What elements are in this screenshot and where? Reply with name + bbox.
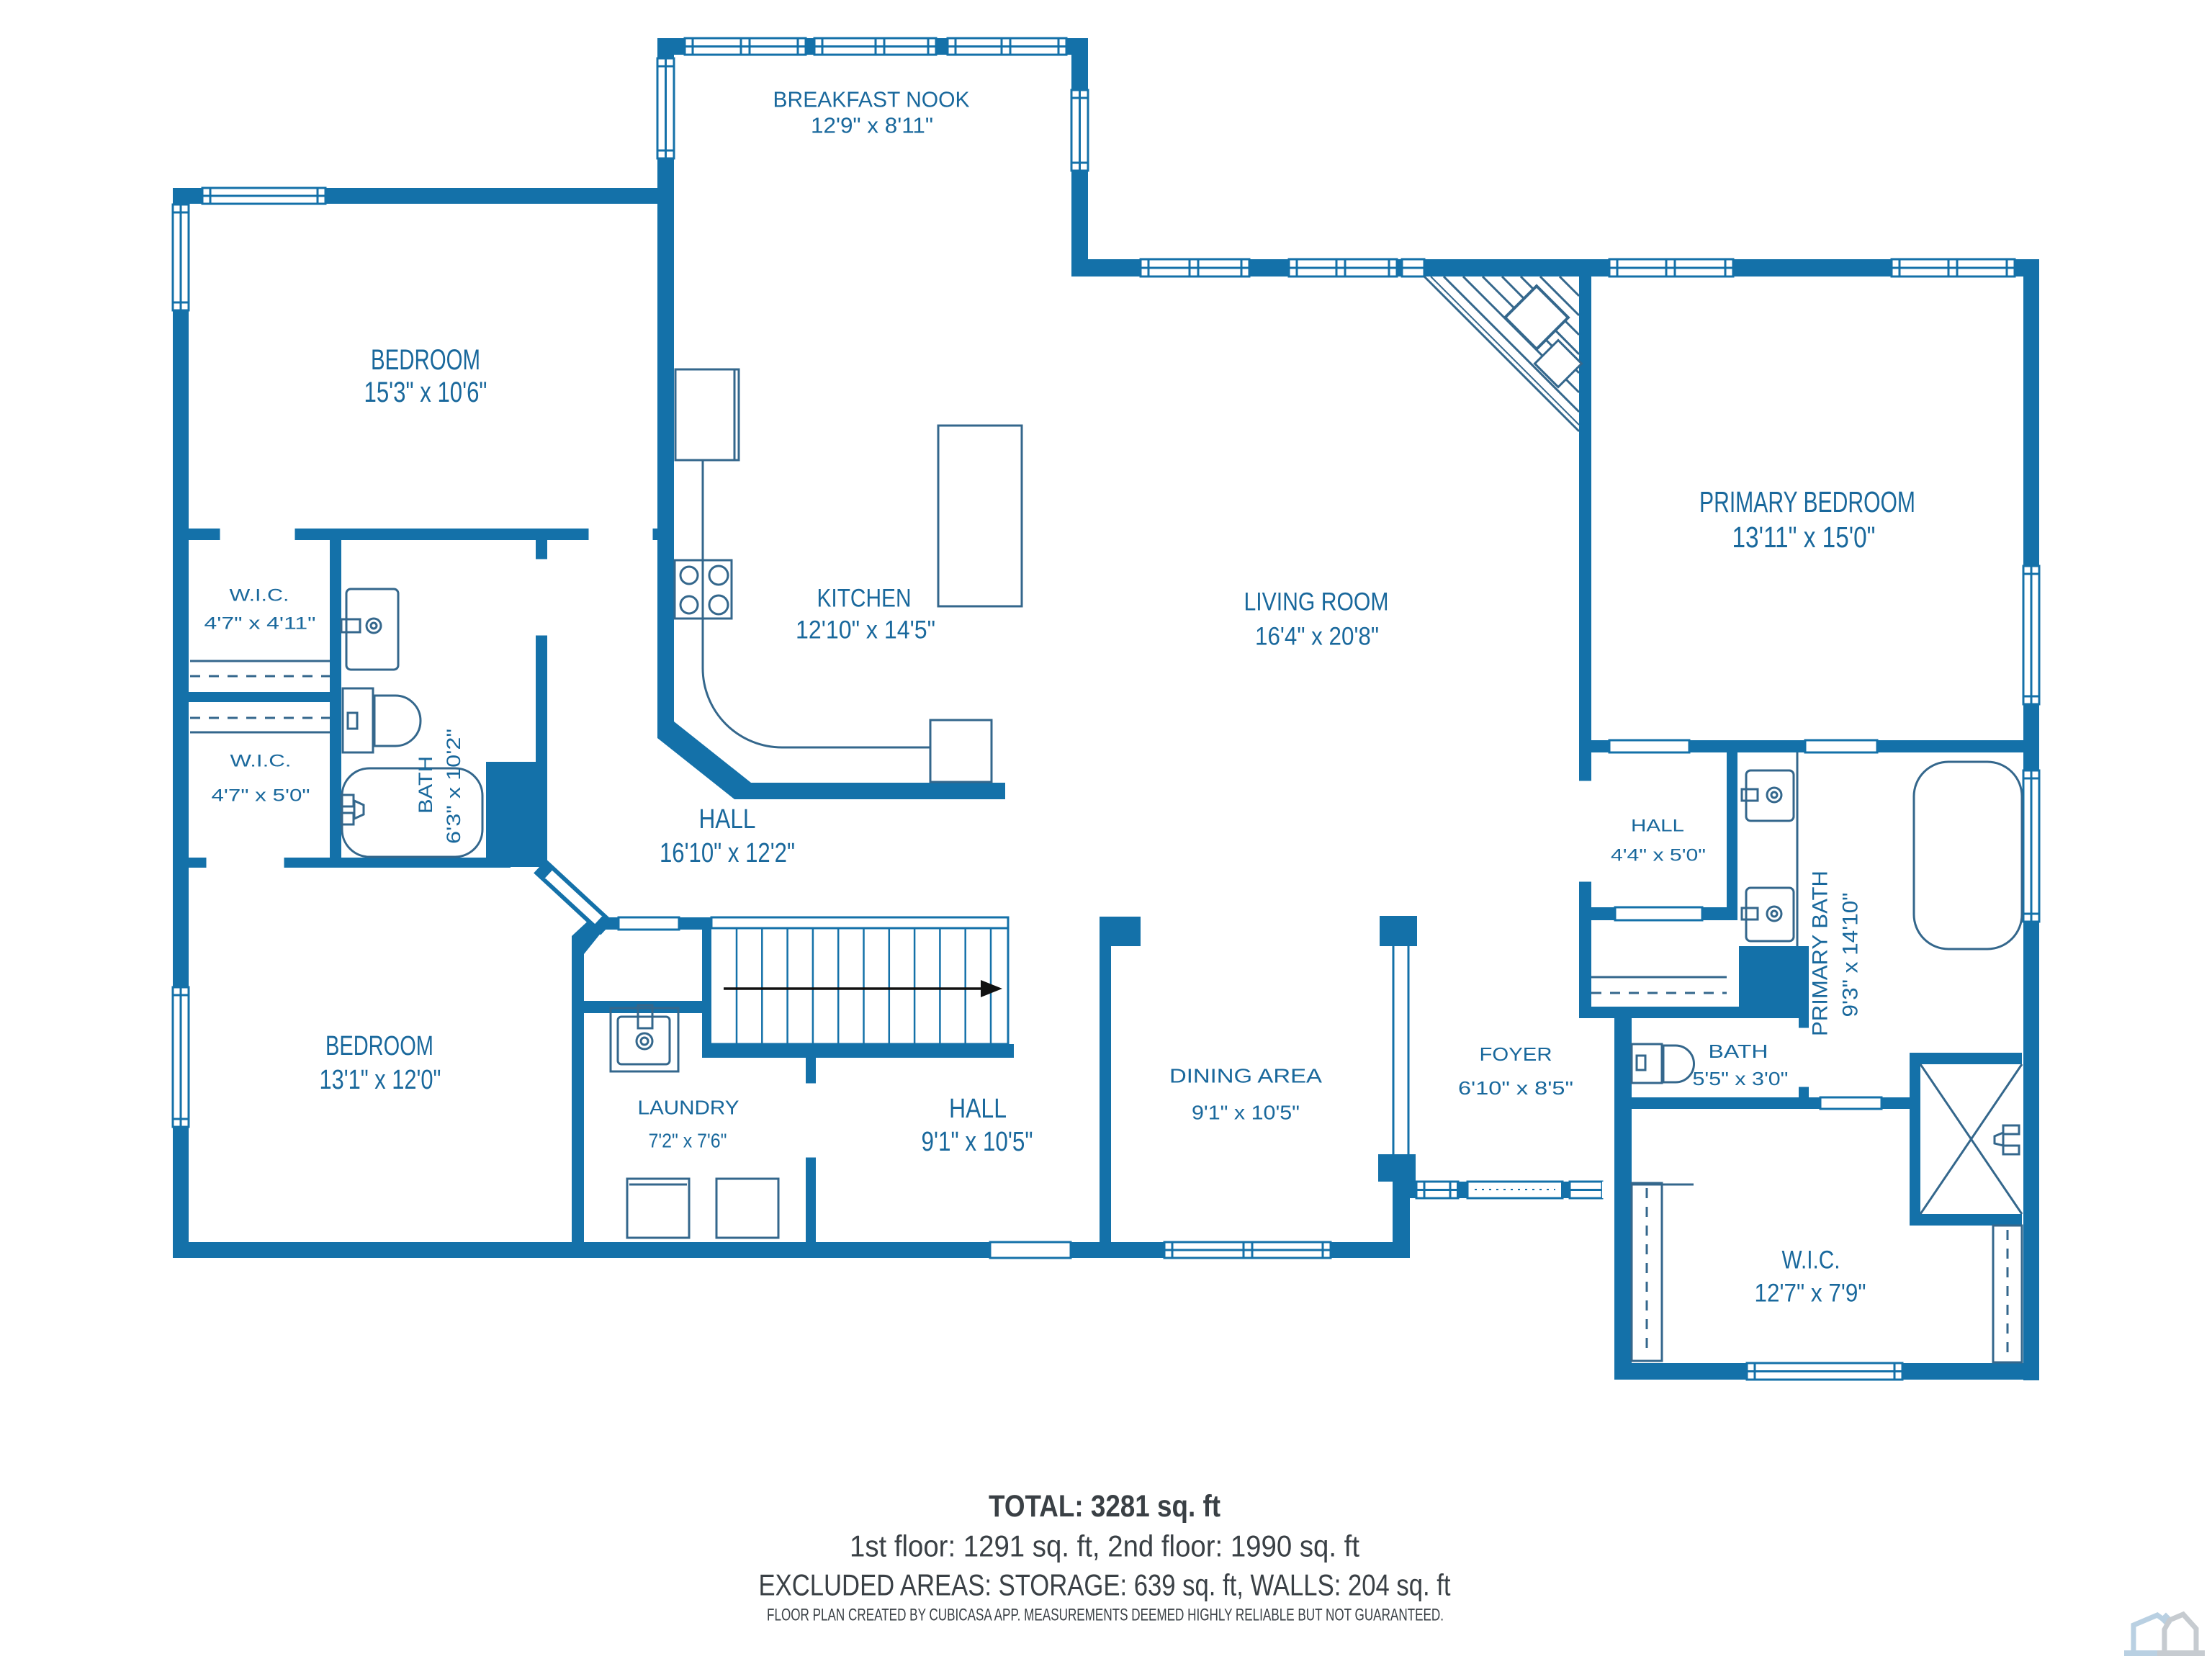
svg-text:12'7" x 7'9": 12'7" x 7'9" [1755, 1280, 1866, 1308]
svg-text:HALL: HALL [699, 804, 756, 835]
svg-text:13'11" x 15'0": 13'11" x 15'0" [1732, 521, 1876, 554]
svg-text:15'3" x 10'6": 15'3" x 10'6" [364, 377, 487, 408]
svg-text:16'4" x 20'8": 16'4" x 20'8" [1255, 623, 1379, 651]
svg-text:W.I.C.: W.I.C. [230, 586, 289, 606]
svg-text:PRIMARY BEDROOM: PRIMARY BEDROOM [1699, 485, 1915, 518]
svg-text:TOTAL: 3281 sq. ft: TOTAL: 3281 sq. ft [989, 1489, 1220, 1524]
svg-text:13'1" x 12'0": 13'1" x 12'0" [320, 1065, 441, 1095]
svg-text:1st floor: 1291 sq. ft, 2nd fl: 1st floor: 1291 sq. ft, 2nd floor: 1990 … [850, 1529, 1359, 1563]
svg-text:12'10" x 14'5": 12'10" x 14'5" [796, 616, 935, 644]
svg-text:DINING AREA: DINING AREA [1169, 1065, 1322, 1087]
svg-text:FOYER: FOYER [1480, 1043, 1552, 1065]
svg-text:5'5" x 3'0": 5'5" x 3'0" [1693, 1068, 1789, 1089]
svg-text:LIVING ROOM: LIVING ROOM [1244, 588, 1389, 616]
svg-text:BATH: BATH [1709, 1040, 1768, 1062]
svg-text:BREAKFAST NOOK: BREAKFAST NOOK [773, 87, 970, 112]
svg-text:BATH: BATH [415, 756, 436, 814]
svg-text:HALL: HALL [1631, 817, 1684, 836]
svg-text:9'1" x 10'5": 9'1" x 10'5" [922, 1127, 1033, 1157]
svg-text:6'3" x 10'2": 6'3" x 10'2" [443, 729, 464, 844]
svg-text:PRIMARY BATH: PRIMARY BATH [1809, 871, 1833, 1036]
svg-text:EXCLUDED AREAS: STORAGE: 639 s: EXCLUDED AREAS: STORAGE: 639 sq. ft, WAL… [759, 1568, 1451, 1602]
svg-text:W.I.C.: W.I.C. [230, 752, 292, 771]
svg-text:BEDROOM: BEDROOM [371, 344, 480, 376]
svg-text:9'1" x 10'5": 9'1" x 10'5" [1192, 1102, 1300, 1124]
svg-text:4'4" x 5'0": 4'4" x 5'0" [1611, 846, 1706, 866]
svg-text:7'2" x 7'6": 7'2" x 7'6" [649, 1130, 727, 1152]
svg-text:LAUNDRY: LAUNDRY [638, 1097, 739, 1119]
svg-text:6'10" x 8'5": 6'10" x 8'5" [1458, 1077, 1573, 1099]
svg-text:12'9" x 8'11": 12'9" x 8'11" [811, 113, 933, 138]
svg-text:16'10" x 12'2": 16'10" x 12'2" [660, 838, 795, 868]
svg-text:4'7" x 5'0": 4'7" x 5'0" [212, 786, 310, 806]
svg-text:9'3" x 14'10": 9'3" x 14'10" [1839, 893, 1863, 1017]
svg-text:BEDROOM: BEDROOM [325, 1031, 433, 1061]
svg-text:W.I.C.: W.I.C. [1782, 1246, 1840, 1274]
svg-text:FLOOR PLAN CREATED BY CUBICASA: FLOOR PLAN CREATED BY CUBICASA APP. MEAS… [767, 1606, 1444, 1625]
svg-text:KITCHEN: KITCHEN [817, 585, 912, 613]
svg-text:HALL: HALL [949, 1094, 1007, 1124]
svg-text:4'7" x 4'11": 4'7" x 4'11" [204, 614, 316, 634]
